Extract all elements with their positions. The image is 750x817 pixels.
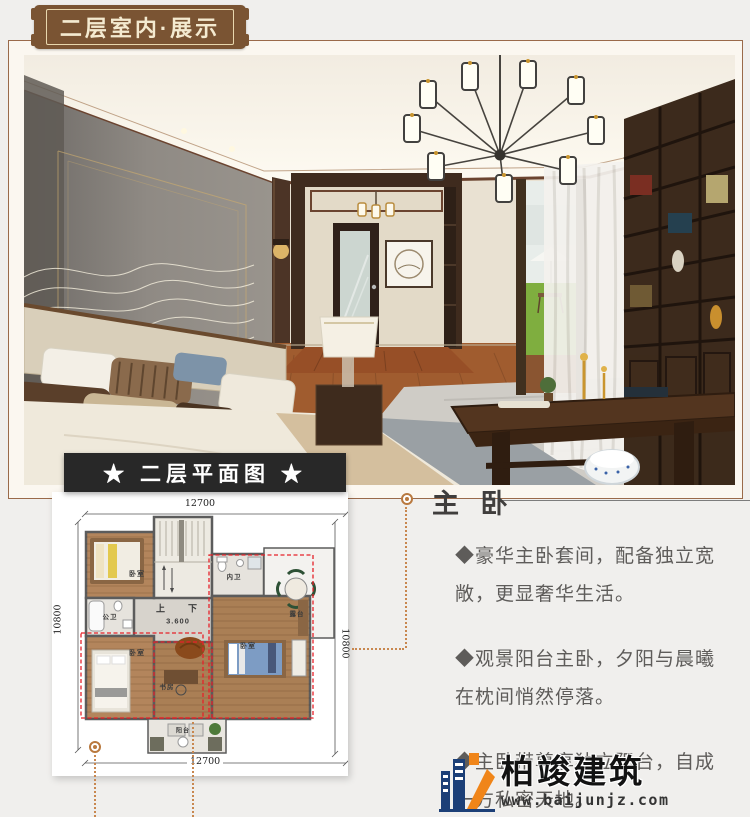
plan-label: 卧室	[129, 648, 145, 658]
title-rule	[498, 500, 750, 501]
plan-label: 露台	[290, 608, 305, 618]
company-logo: 柏竣建筑 www.baijunjz.com	[437, 750, 750, 814]
interior-photo	[24, 55, 735, 485]
dimension-left: 10800	[53, 604, 64, 634]
floor-plan-drawing	[52, 492, 348, 776]
plan-label: 阳台	[176, 726, 190, 735]
connector-line	[405, 507, 407, 648]
floor-plan-card: 卧室内卫露台公卫卧室书房卧室阳台上下3.600 12700 12700 1080…	[52, 492, 348, 776]
connector-line	[94, 755, 96, 817]
plan-label: 卧室	[240, 641, 256, 651]
dimension-top: 12700	[52, 498, 348, 509]
dimension-right: 10800	[339, 628, 350, 658]
feature-item: ◆观景阳台主卧，夕阳与晨曦在枕间悄然停落。	[455, 641, 723, 717]
plan-label: 上	[156, 602, 166, 615]
connector-line	[192, 722, 194, 817]
badge-ear	[244, 34, 249, 46]
section-title: 主 卧	[432, 482, 515, 521]
company-name: 柏竣建筑	[501, 755, 670, 788]
plan-label: 3.600	[166, 617, 190, 626]
floor-plan-banner: ★ 二层平面图 ★	[64, 453, 346, 492]
plan-label: 公卫	[103, 611, 118, 621]
plan-label: 卧室	[129, 569, 145, 579]
badge-ear	[31, 8, 36, 20]
wall-art	[386, 241, 432, 287]
badge-ear	[244, 8, 249, 20]
badge-ear	[31, 34, 36, 46]
wall-sconce-icon	[273, 243, 289, 259]
plan-label: 书房	[160, 681, 175, 691]
plan-label: 下	[188, 602, 198, 615]
section-badge: 二层室内·展示	[34, 5, 246, 49]
connector-marker	[89, 741, 101, 753]
interior-render	[24, 55, 735, 485]
connector-line	[352, 648, 404, 650]
plan-label: 内卫	[227, 571, 242, 581]
section-badge-label: 二层室内·展示	[46, 9, 234, 45]
company-url: www.baijunjz.com	[501, 791, 670, 809]
feature-item: ◆豪华主卧套间，配备独立宽敞，更显奢华生活。	[455, 538, 723, 614]
connector-marker	[401, 493, 413, 505]
company-logo-icon	[437, 751, 497, 813]
porcelain-stool-icon	[585, 450, 639, 484]
page: 二层室内·展示 ★ 二层平面图 ★	[0, 0, 750, 817]
